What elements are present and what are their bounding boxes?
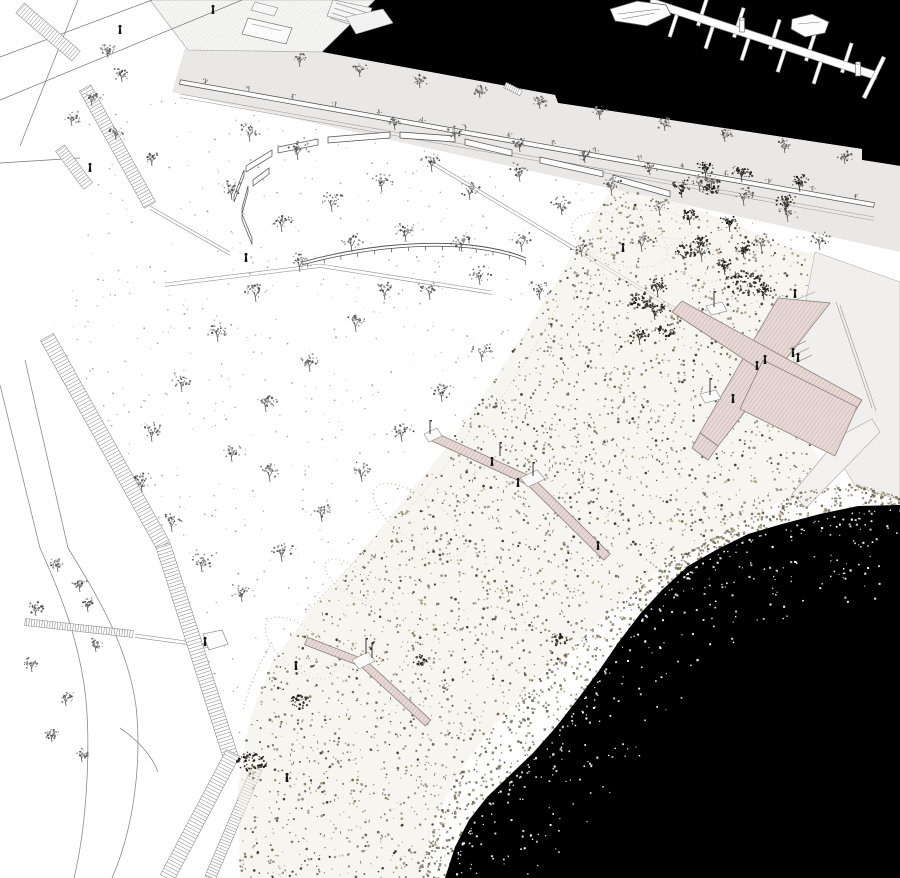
site-plan-svg — [0, 0, 900, 878]
waterfront-park-site-plan — [0, 0, 900, 878]
